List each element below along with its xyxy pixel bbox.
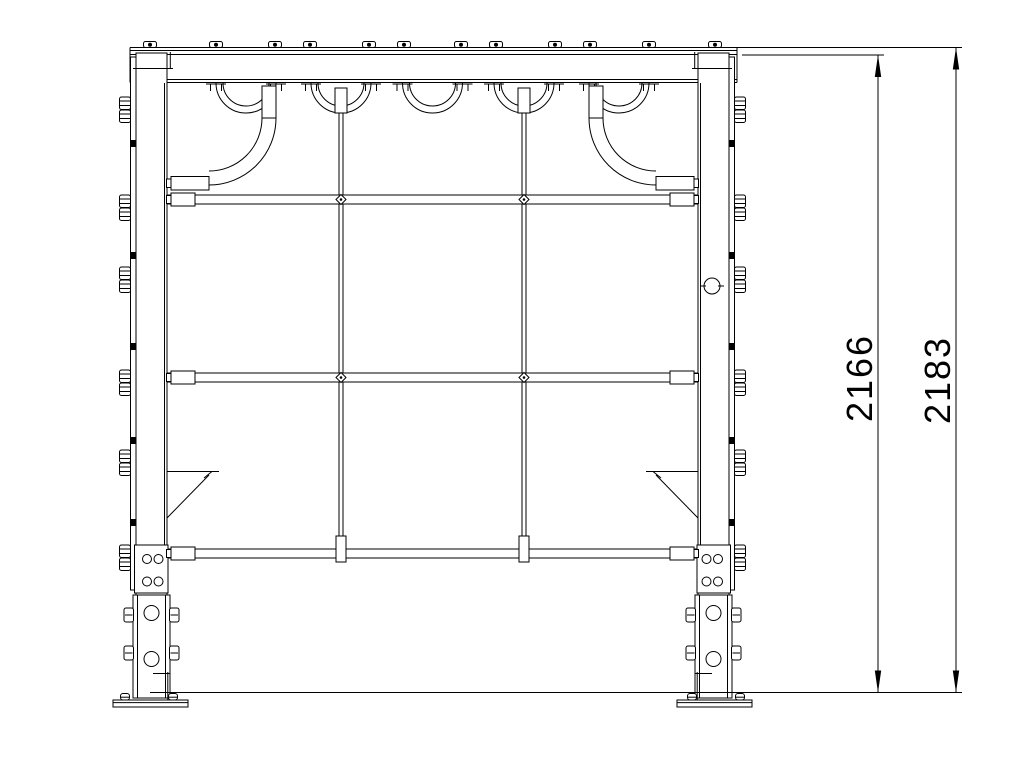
plate-nub — [131, 437, 137, 444]
beam-bolt-dot — [273, 43, 277, 47]
side-bolt — [120, 208, 131, 221]
beam-bolt-dot — [713, 43, 717, 47]
rail-tube — [167, 549, 698, 558]
arrow-up-2183 — [953, 48, 959, 70]
drop-tubes — [339, 113, 526, 553]
base-plate — [113, 700, 188, 707]
plate-nub — [131, 519, 137, 526]
side-bolt — [735, 195, 746, 208]
bend-inner — [209, 118, 262, 171]
drop-top-fitting — [335, 88, 347, 113]
bend-outer — [209, 118, 276, 185]
beam-bolt-dot — [367, 43, 371, 47]
dimension-label-2183: 2183 — [917, 336, 958, 424]
joint-knot-dot — [523, 198, 526, 201]
side-bolt — [735, 370, 746, 383]
gusset-tick — [204, 472, 212, 479]
beam-bolt-dot — [308, 43, 312, 47]
side-bolt — [735, 110, 746, 123]
side-bolt — [735, 450, 746, 463]
side-bolt — [735, 97, 746, 110]
beam-bolt-dot — [459, 43, 463, 47]
side-bolt — [120, 267, 131, 280]
base-plate — [677, 700, 752, 707]
rail-end-fitting — [171, 547, 195, 560]
joint-knot-dot — [340, 376, 343, 379]
column-side-plate — [131, 57, 137, 590]
side-bolt — [735, 545, 746, 558]
dimension-label-2166: 2166 — [839, 334, 880, 422]
beam-bolt-dot — [553, 43, 557, 47]
side-bolt — [120, 280, 131, 293]
cross-rails — [167, 195, 698, 558]
plate-nub — [729, 343, 735, 350]
beam-bolt-dot — [214, 43, 218, 47]
technical-drawing-canvas: 2166 2183 — [0, 0, 1024, 768]
side-bolt — [120, 558, 131, 571]
side-bolt — [735, 208, 746, 221]
leg-bracket — [695, 595, 732, 698]
bend-end-fitting — [171, 177, 209, 191]
arrow-down-2183 — [953, 671, 959, 693]
drop-bottom-fitting — [336, 536, 346, 562]
side-bolt — [735, 280, 746, 293]
side-bolt — [120, 450, 131, 463]
beam-bolt-dot — [148, 43, 152, 47]
hoop-inner — [410, 83, 456, 106]
drop-top-fitting — [518, 88, 530, 113]
side-bolt — [120, 97, 131, 110]
joint-knot-dot — [523, 376, 526, 379]
hinge-plate — [135, 545, 169, 593]
column-side-plate — [729, 57, 735, 590]
gusset-tick — [653, 472, 661, 479]
hinge-plate — [697, 545, 731, 593]
side-bolt — [735, 267, 746, 280]
side-bolt — [120, 545, 131, 558]
side-bolt — [735, 383, 746, 396]
rail-tube — [167, 195, 698, 204]
side-bolt — [120, 195, 131, 208]
dimensions: 2166 2183 — [150, 48, 962, 693]
drawing-page: 2166 2183 — [0, 0, 1024, 768]
gusset-brace — [656, 475, 698, 518]
plate-nub — [729, 437, 735, 444]
gusset-brace — [167, 475, 209, 518]
plate-nub — [729, 519, 735, 526]
side-bolt — [120, 463, 131, 476]
side-bolt — [735, 558, 746, 571]
drop-tube-fittings — [335, 88, 530, 562]
side-bolt — [735, 463, 746, 476]
bend-end-fitting — [656, 177, 694, 191]
leg-bracket — [133, 595, 170, 698]
top-beam — [130, 48, 962, 83]
rail-tube-joints — [336, 195, 529, 383]
beam-bolt-dot — [494, 43, 498, 47]
arrow-up-2166 — [875, 55, 881, 77]
side-bolt — [120, 383, 131, 396]
plate-nub — [131, 140, 137, 147]
side-bolt — [120, 370, 131, 383]
rail-end-fitting — [670, 547, 694, 560]
plate-nub — [729, 140, 735, 147]
bend-outer — [589, 118, 656, 185]
hoop-outer — [403, 83, 463, 113]
rail-end-fitting — [171, 371, 195, 384]
beam-bolt-dot — [402, 43, 406, 47]
rail-end-fitting — [670, 371, 694, 384]
beam-bolt-dot — [647, 43, 651, 47]
rail-tube — [167, 373, 698, 382]
rail-end-fitting — [171, 193, 195, 206]
side-bolt — [120, 110, 131, 123]
bend-top-fitting — [262, 86, 276, 118]
plate-nub — [131, 252, 137, 259]
beam-bolt-dot — [588, 43, 592, 47]
bend-top-fitting — [589, 86, 603, 118]
joint-knot-dot — [340, 198, 343, 201]
arrow-down-2166 — [875, 671, 881, 693]
drop-bottom-fitting — [519, 536, 529, 562]
beam-bolts — [144, 42, 722, 48]
rail-end-fitting — [670, 193, 694, 206]
plate-nub — [131, 343, 137, 350]
plate-nub — [729, 252, 735, 259]
bend-inner — [603, 118, 656, 171]
